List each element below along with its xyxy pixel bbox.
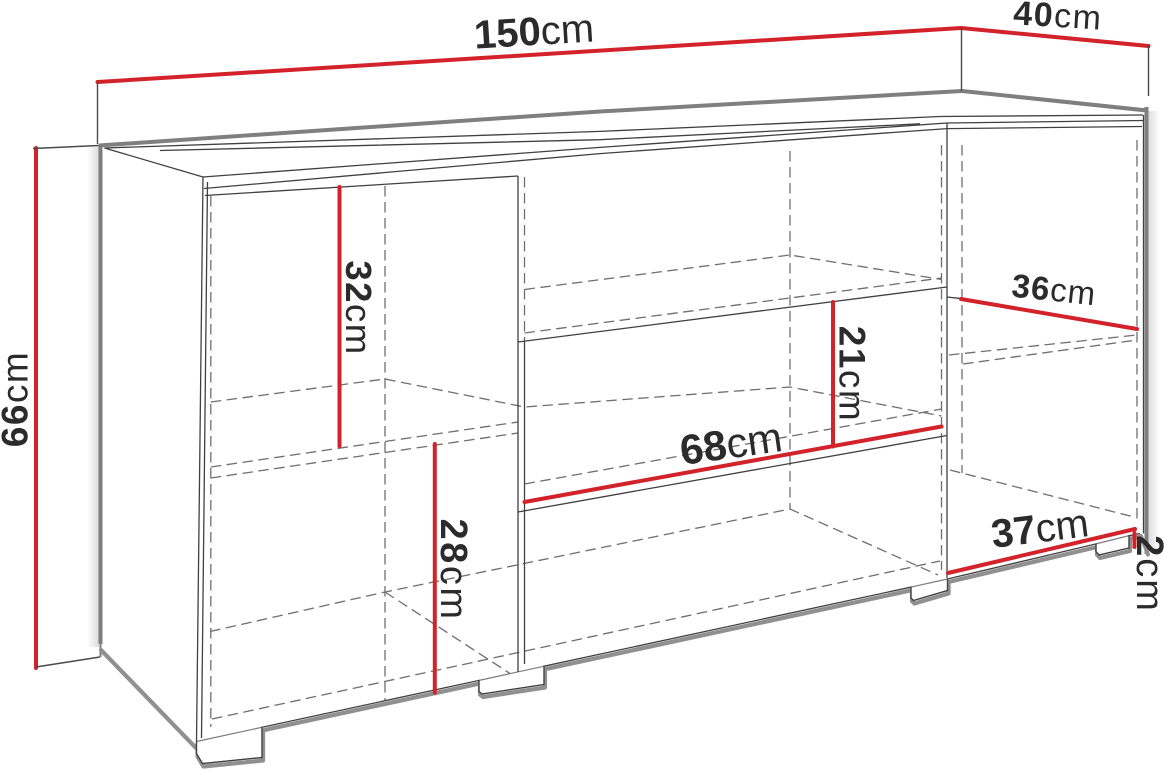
svg-text:40cm: 40cm xyxy=(1012,0,1103,38)
svg-text:2cm: 2cm xyxy=(1128,535,1164,613)
svg-text:32cm: 32cm xyxy=(338,260,379,355)
svg-text:21cm: 21cm xyxy=(832,326,873,422)
svg-text:150cm: 150cm xyxy=(473,6,596,57)
svg-text:66cm: 66cm xyxy=(0,351,36,447)
svg-text:28cm: 28cm xyxy=(432,519,474,622)
